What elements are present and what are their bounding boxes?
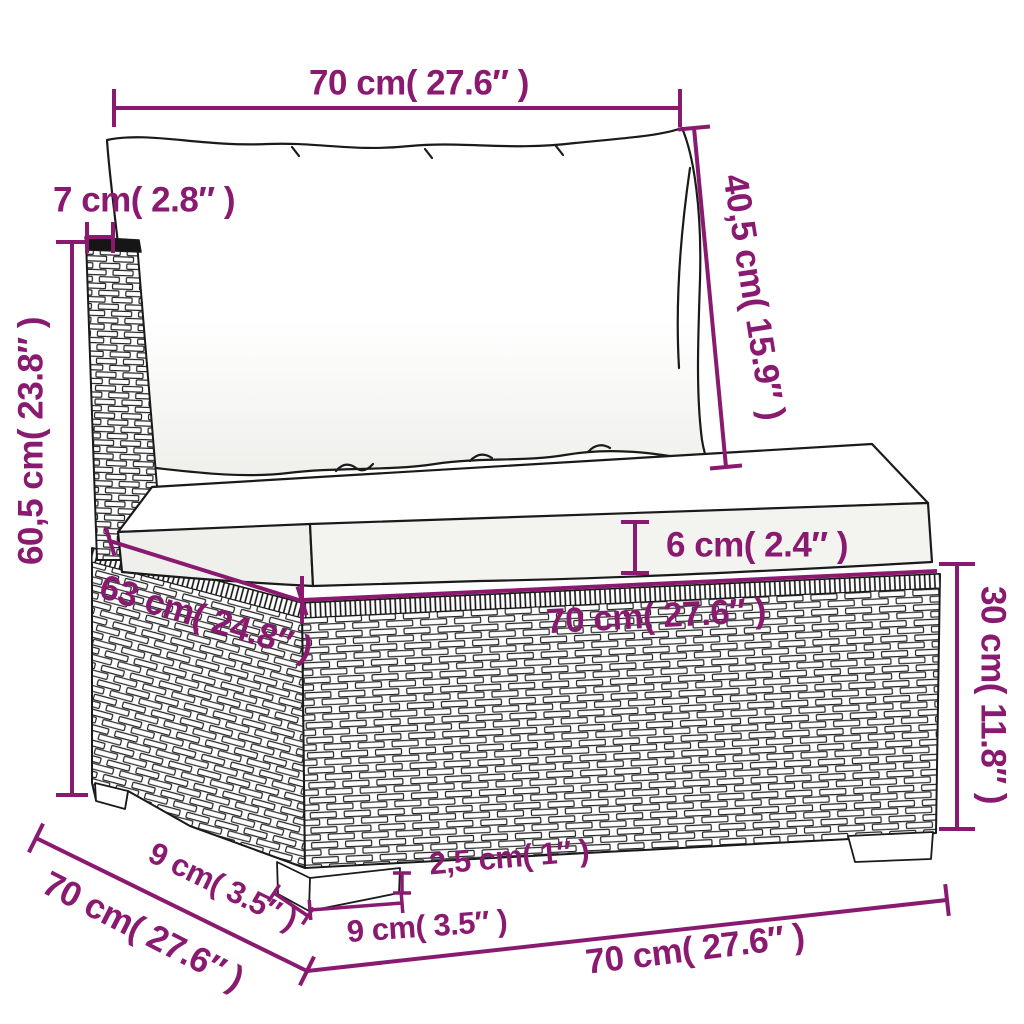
back-width-label: 70 cm( 27.6″ ) bbox=[309, 66, 529, 101]
product-dimension-diagram: 70 cm( 27.6″ ) 7 cm( 2.8″ ) 40,5 cm( 15.… bbox=[0, 0, 1024, 1024]
right-leg bbox=[848, 832, 933, 862]
dim-line-base-height bbox=[939, 564, 975, 829]
base-height-label: 30 cm( 11.8″ ) bbox=[976, 586, 1011, 804]
total-height-label: 60,5 cm( 23.8″ ) bbox=[14, 317, 49, 565]
dim-line-total-height bbox=[56, 242, 88, 795]
seat-cushion-thickness-label: 6 cm( 2.4″ ) bbox=[666, 528, 848, 563]
back-depth-label: 7 cm( 2.8″ ) bbox=[53, 183, 235, 218]
